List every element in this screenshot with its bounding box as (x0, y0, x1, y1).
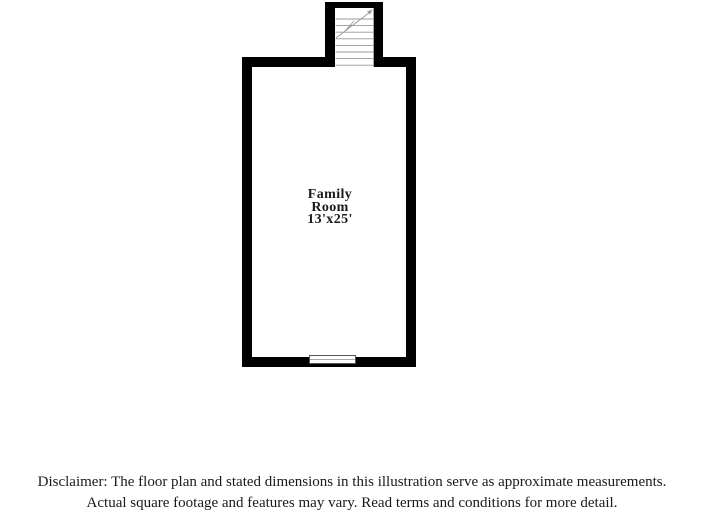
floor-plan: Family Room 13'x25' (0, 0, 704, 517)
floor-plan-page: Family Room 13'x25' Disclaimer: The floo… (0, 0, 704, 517)
stair-treads (335, 8, 374, 67)
room-dimensions: 13'x25' (307, 214, 353, 227)
staircase-icon (335, 8, 374, 67)
stair-right-wall (374, 2, 383, 58)
stair-direction-arrow (336, 11, 372, 38)
room-label: Family Room 13'x25' (307, 189, 353, 227)
disclaimer-line2: Actual square footage and features may v… (0, 493, 704, 514)
disclaimer-text: Disclaimer: The floor plan and stated di… (0, 472, 704, 514)
window-icon (309, 355, 356, 364)
disclaimer-line1: Disclaimer: The floor plan and stated di… (0, 472, 704, 493)
stair-left-wall (325, 2, 335, 58)
window-pane-line (310, 359, 355, 360)
